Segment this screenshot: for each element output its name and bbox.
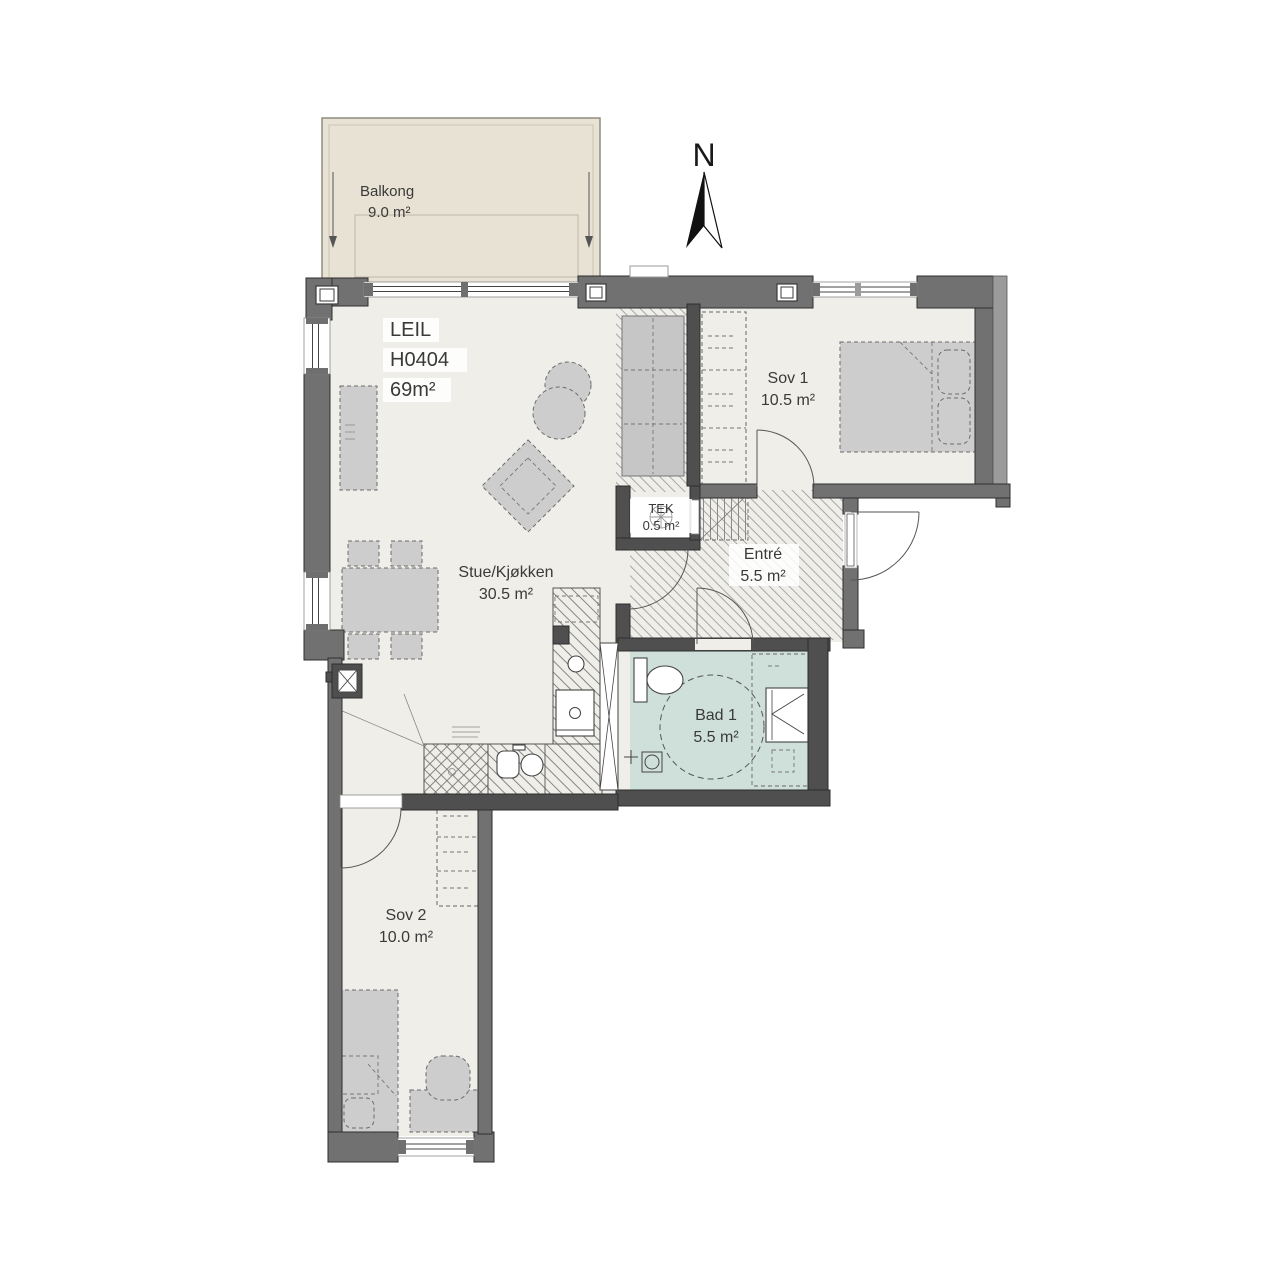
desk-chair (426, 1056, 470, 1100)
sov1-window (813, 282, 917, 297)
room-label-tek: TEK (648, 501, 674, 516)
apartment-unit: H0404 (390, 349, 449, 371)
room-area-tek: 0.5 m² (643, 518, 681, 533)
kitchen-sink-bowl-round (521, 754, 543, 776)
kitchen-small-sink (568, 656, 584, 672)
toilet-bowl (647, 666, 683, 694)
entre-coatrack (700, 494, 748, 540)
pillow (344, 1098, 374, 1128)
armchair-seat (533, 387, 585, 439)
living-window-2 (304, 572, 330, 630)
kitchen-sink-bowl (497, 751, 519, 778)
apartment-label: LEIL (390, 319, 431, 341)
room-area-sov1: 10.5 m² (761, 392, 816, 409)
balcony (322, 118, 600, 290)
pillow (938, 398, 970, 444)
dining-chair (348, 541, 379, 566)
room-area-stue: 30.5 m² (479, 586, 534, 603)
living-window-1 (304, 318, 330, 374)
neighbor-wall (993, 276, 1007, 498)
room-area-sov2: 10.0 m² (379, 929, 434, 946)
room-label-sov2: Sov 2 (386, 907, 427, 924)
room-label-entre: Entré (744, 546, 782, 563)
balcony-door (364, 282, 578, 297)
tek-door (691, 500, 699, 534)
sideboard (340, 386, 377, 490)
room-label-bad1: Bad 1 (695, 707, 737, 724)
dining-table (342, 568, 438, 632)
apartment-area: 69m² (390, 379, 436, 401)
kitchen-faucet (513, 745, 525, 750)
room-area-entre: 5.5 m² (740, 568, 786, 585)
room-area-balkong: 9.0 m² (368, 204, 411, 221)
floor-plan-page: Balkong 9.0 m² LEIL H0404 69m² Stue/Kjøk… (0, 0, 1279, 1280)
dining-chair (348, 634, 379, 659)
north-arrow-icon: N (686, 137, 722, 248)
kitchen-corner (424, 744, 488, 794)
room-label-sov1: Sov 1 (768, 370, 809, 387)
dining-chair (391, 541, 422, 566)
north-label: N (692, 137, 715, 173)
entrance-door-swing (851, 512, 919, 580)
room-label-stue: Stue/Kjøkken (458, 564, 553, 581)
sov2-window (398, 1138, 474, 1156)
sov2-door-frame (340, 795, 402, 808)
kitchen-appliance (556, 690, 594, 736)
pillow (938, 350, 970, 394)
room-area-bad1: 5.5 m² (693, 729, 739, 746)
room-label-balkong: Balkong (360, 183, 414, 200)
toilet-tank (634, 658, 647, 702)
exterior-fixture (630, 266, 668, 277)
floor-plan-svg: Balkong 9.0 m² LEIL H0404 69m² Stue/Kjøk… (0, 0, 1279, 1280)
dining-chair (391, 634, 422, 659)
